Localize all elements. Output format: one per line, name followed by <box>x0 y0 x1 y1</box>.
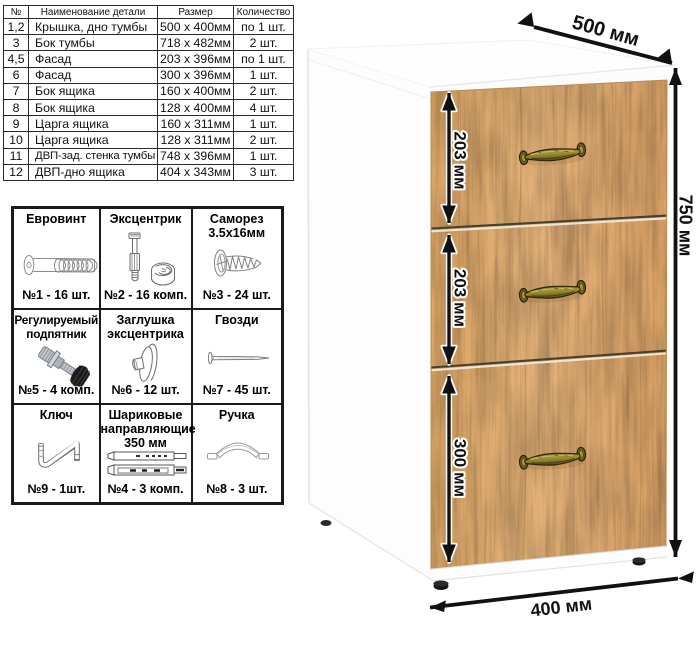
svg-text:203 мм: 203 мм <box>451 131 470 189</box>
svg-text:203 мм: 203 мм <box>451 269 470 327</box>
svg-text:300 мм: 300 мм <box>451 439 470 497</box>
svg-text:400 мм: 400 мм <box>530 594 594 621</box>
svg-text:750 мм: 750 мм <box>676 195 696 257</box>
